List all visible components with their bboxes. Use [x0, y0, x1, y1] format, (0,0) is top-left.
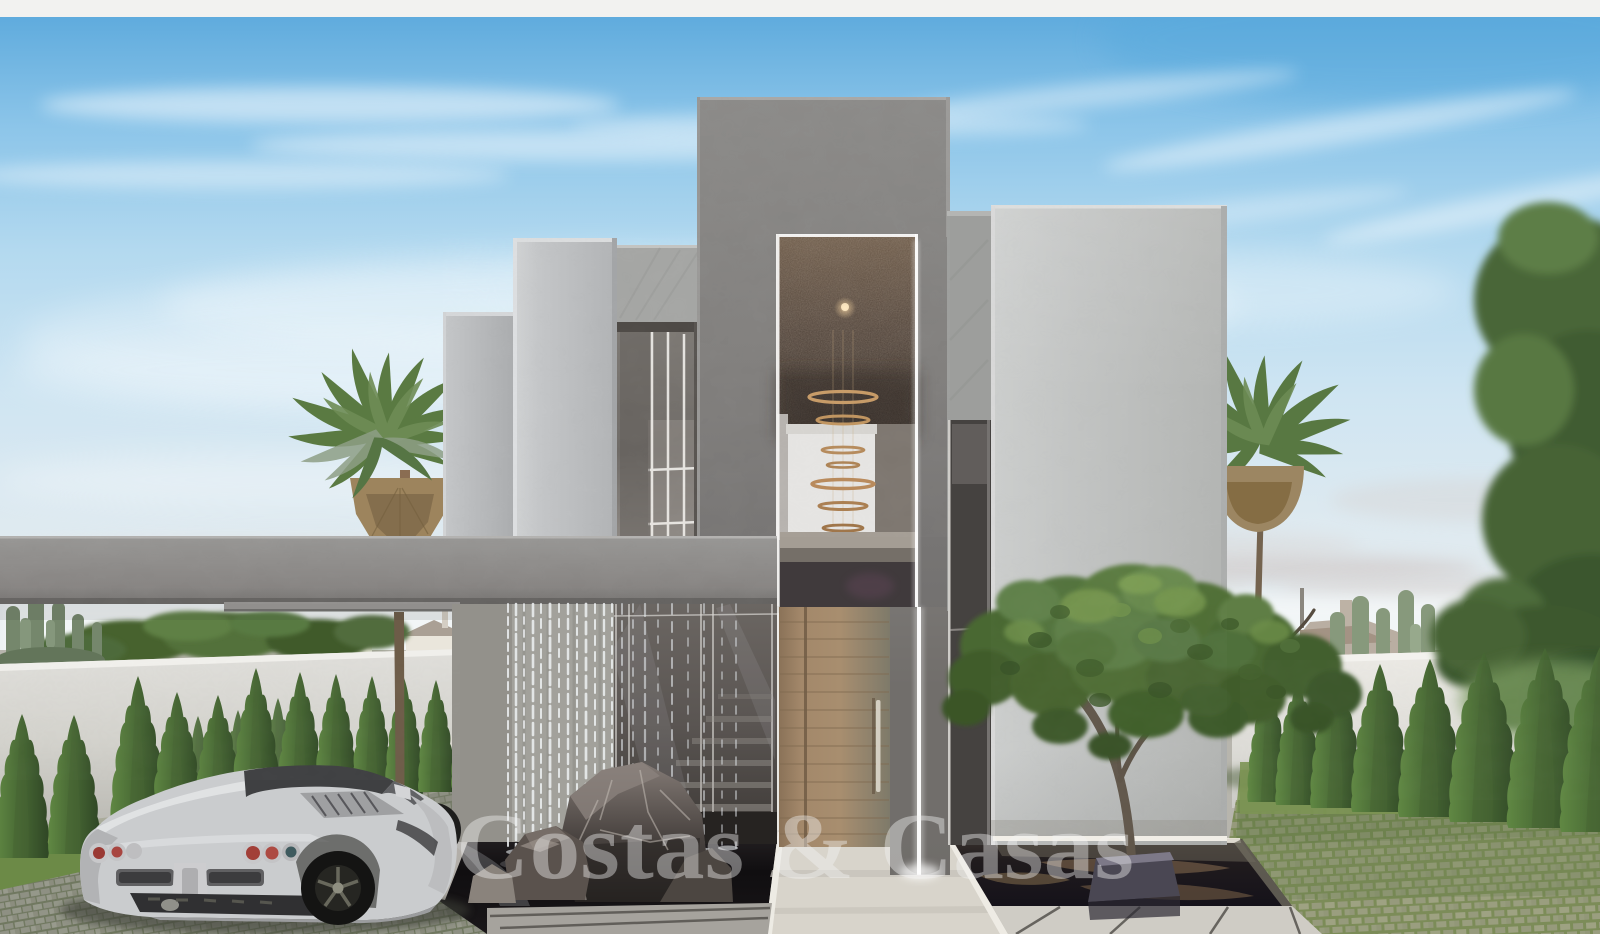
svg-text:Costas & Casas: Costas & Casas: [456, 795, 1134, 899]
